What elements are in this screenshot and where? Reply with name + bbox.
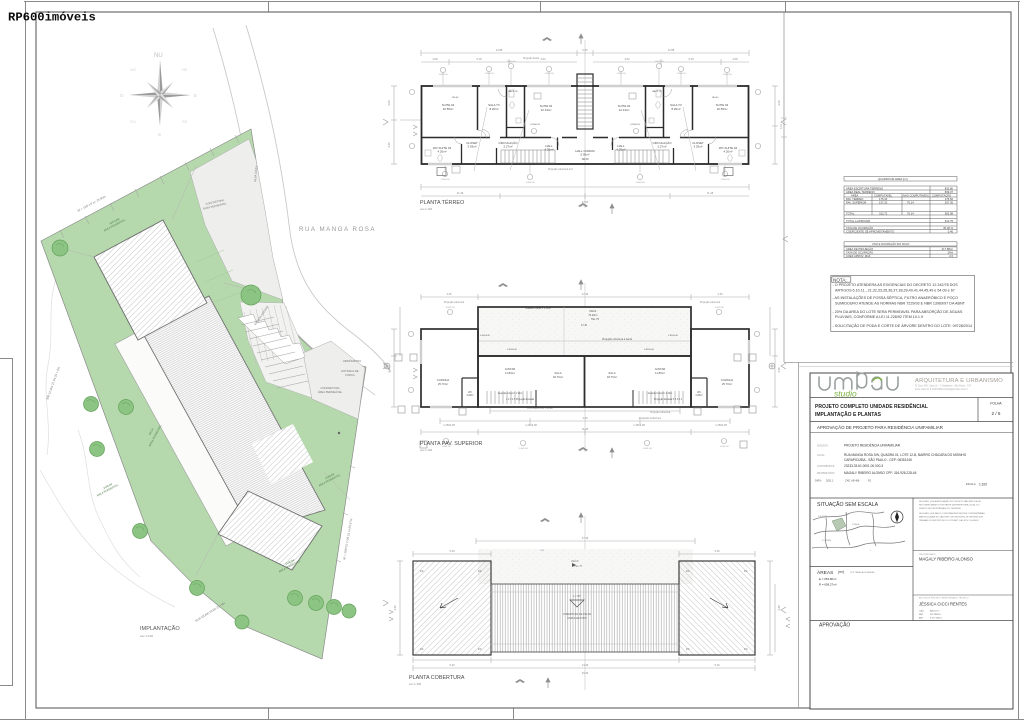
svg-text:QUADRO DE AREA (m²): QUADRO DE AREA (m²)	[878, 177, 908, 181]
svg-text:PROJETO COMPLETO UNIDADE RESID: PROJETO COMPLETO UNIDADE RESIDÊNCIAL	[815, 402, 928, 410]
svg-text:TOTAL: TOTAL	[846, 211, 855, 215]
svg-text:CONCRETONA: CONCRETONA	[320, 386, 339, 390]
svg-text:AUTOR DE PROJETO RESPONSÁVEL T: AUTOR DE PROJETO RESPONSÁVEL TÉCNICO	[919, 597, 969, 600]
svg-text:1.650/.05: 1.650/.05	[616, 73, 626, 75]
svg-text:Projeção cobertura: Projeção cobertura	[639, 416, 661, 420]
svg-text:5.49: 5.49	[714, 549, 720, 553]
svg-text:R. Tons, 460, Casa 31 - V. Mad: R. Tons, 460, Casa 31 - V. Madalena - Sã…	[915, 385, 971, 388]
svg-text:8.20m²: 8.20m²	[490, 107, 499, 111]
svg-text:35.06 %: 35.06 %	[943, 226, 953, 230]
svg-text:DIREITO DE PROPRIEDADE DO: DIREITO DE PROPRIEDADE DO TERRENO.	[919, 507, 962, 510]
svg-text:TEL.75: TEL.75	[591, 318, 600, 321]
svg-text:137.20: 137.20	[879, 200, 888, 204]
svg-text:190.00: 190.00	[581, 159, 589, 161]
svg-text:0.7500.10: 0.7500.10	[530, 124, 541, 126]
svg-text:4.46: 4.46	[387, 142, 391, 148]
svg-text:esc 1:100: esc 1:100	[409, 682, 422, 686]
svg-text:Fone: Dani 11 9 2345-6692 pris: Fone: Dani 11 9 2345-6692 priscila@umbau…	[915, 388, 968, 391]
svg-text:1 x 45°: 1 x 45°	[573, 595, 581, 598]
svg-text:1.650/.05: 1.650/.05	[654, 61, 664, 63]
svg-text:1.4503.08: 1.4503.08	[715, 423, 727, 427]
svg-text:NU: NU	[154, 53, 163, 59]
svg-text:11.86m²: 11.86m²	[505, 371, 515, 375]
svg-text:4.35m²: 4.35m²	[545, 148, 554, 152]
svg-text:1.45/1.08: 1.45/1.08	[518, 448, 528, 450]
svg-text:(m²): (m²)	[838, 570, 844, 574]
svg-text:ENTRADA DE: ENTRADA DE	[341, 369, 358, 373]
svg-text:839.07: 839.07	[945, 190, 954, 194]
svg-text:309.12 des 21.04.24 + 9m: 309.12 des 21.04.24 + 9m	[45, 366, 61, 401]
svg-text:studio: studio	[834, 389, 857, 399]
svg-text:Projeção Escada 5 4 3 2 1: Projeção Escada 5 4 3 2 1	[654, 398, 683, 401]
svg-text:TENHAM OS DEPÓSITOS DO LOTE A: TENHAM OS DEPÓSITOS DO LOTE ART. DA LEI …	[919, 519, 979, 522]
svg-text:3.62: 3.62	[624, 57, 630, 61]
svg-text:E = 653.80m²: E = 653.80m²	[819, 577, 836, 581]
svg-text:3.62: 3.62	[540, 57, 546, 61]
svg-text:PLANTA PAV. SUPERIOR: PLANTA PAV. SUPERIOR	[420, 441, 483, 447]
svg-text:NOTA:: NOTA:	[833, 277, 847, 282]
svg-text:IMPLANTAÇÃO: IMPLANTAÇÃO	[140, 625, 180, 632]
svg-text:R = 658.27m²: R = 658.27m²	[819, 583, 837, 587]
svg-text:1.450/.05: 1.450/.05	[440, 179, 450, 181]
svg-text:AREA: AREA	[851, 193, 859, 197]
svg-text:RRT: RRT	[919, 614, 924, 616]
svg-text:ASSUNTO:: ASSUNTO:	[817, 445, 829, 448]
svg-text:ÁREA PERMEÁVEL: ÁREA PERMEÁVEL	[318, 390, 343, 394]
svg-text:COBERTURA DE TELHA: COBERTURA DE TELHA	[563, 613, 592, 616]
svg-text:FORÇA: FORÇA	[345, 373, 355, 377]
svg-text:76.14: 76.14	[907, 211, 914, 215]
svg-text:4.8503.40: 4.8503.40	[507, 349, 518, 351]
svg-text:SITUAÇÃO SEM ESCALA: SITUAÇÃO SEM ESCALA	[817, 501, 879, 508]
svg-text:Guarda Corpo h 1.10m: Guarda Corpo h 1.10m	[648, 392, 672, 395]
svg-text:CFF TABELA DE ÁREAS: CFF TABELA DE ÁREAS	[850, 571, 875, 574]
svg-text:11.48: 11.48	[457, 191, 464, 195]
svg-text:COEF APROV. MAX: COEF APROV. MAX	[846, 254, 871, 258]
svg-text:MATRÍCULADAS NO CARTÓRIO DE RE: MATRÍCULADAS NO CARTÓRIO DE REGISTRO DE …	[919, 516, 984, 519]
svg-text:76.20m²: 76.20m²	[588, 314, 597, 317]
svg-text:25.70m²: 25.70m²	[438, 382, 448, 386]
svg-text:4.46: 4.46	[387, 367, 391, 373]
svg-text:CAD. AE-486:: CAD. AE-486:	[845, 480, 860, 483]
svg-text:18.76m²: 18.76m²	[553, 375, 563, 379]
svg-text:11.46: 11.46	[582, 427, 589, 431]
svg-text:4.46: 4.46	[446, 292, 452, 296]
svg-text:IMPLANTAÇÃO E PLANTAS: IMPLANTAÇÃO E PLANTAS	[815, 411, 882, 418]
svg-text:4.46: 4.46	[582, 416, 588, 420]
svg-text:1.65/2.30: 1.65/2.30	[714, 307, 724, 309]
svg-text:- 20% DA AREA DO LOTE SERA PE: - 20% DA AREA DO LOTE SERA PERMEAVEL PAR…	[833, 309, 963, 314]
svg-text:175.30: 175.30	[879, 197, 888, 201]
svg-text:APROVAÇÃO DE PROJETO PARA RESI: APROVAÇÃO DE PROJETO PARA RESIDÊNCIA UNI…	[817, 425, 943, 430]
svg-text:4.20m²: 4.20m²	[438, 150, 447, 154]
svg-text:COMPUTAVEL: COMPUTAVEL	[874, 193, 893, 197]
svg-text:DECK: DECK	[571, 559, 578, 563]
svg-text:APROVAÇÃO: APROVAÇÃO	[819, 622, 850, 629]
svg-text:SUMIDOURO ATENDE AS NORMAS NBR: SUMIDOURO ATENDE AS NORMAS NBR 7229/93 E…	[835, 302, 966, 306]
svg-text:- SOLICITAÇÃO DE PODA E CORTE: - SOLICITAÇÃO DE PODA E CORTE DE ÁRVORE …	[833, 323, 973, 328]
svg-text:- O PROJETO ATENDERA AS EXIGEN: - O PROJETO ATENDERA AS EXIGENCIAS DO DE…	[833, 283, 959, 287]
svg-text:SO: SO	[130, 119, 136, 124]
svg-text:Guarda Corpo h 1.10m: Guarda Corpo h 1.10m	[525, 307, 551, 310]
svg-text:4.46: 4.46	[717, 292, 723, 296]
svg-text:AREA REAL TERRENO: AREA REAL TERRENO	[846, 190, 875, 194]
svg-text:4.35m²: 4.35m²	[617, 148, 626, 152]
svg-text:190.00: 190.00	[452, 97, 459, 99]
svg-text:1.450/.05: 1.450/.05	[720, 179, 730, 181]
svg-text:2.27m²: 2.27m²	[658, 145, 667, 149]
svg-text:3.48: 3.48	[777, 605, 781, 611]
svg-text:PLUVIAIS, CONFORME A LEI 11.22: PLUVIAIS, CONFORME A LEI 11.228/92 ITEM …	[835, 315, 923, 319]
svg-text:25.46: 25.46	[582, 671, 589, 675]
svg-text:Projeção cobertura a beiral: Projeção cobertura a beiral	[602, 338, 632, 341]
svg-text:WC: WC	[468, 392, 472, 394]
svg-text:DECK: DECK	[590, 310, 597, 313]
svg-text:1.650/.05: 1.650/.05	[438, 74, 448, 76]
svg-text:RUA MANGA ROSA S/N, QUADRA 01,: RUA MANGA ROSA S/N, QUADRA 01, LOTE 12-B…	[844, 453, 967, 457]
svg-text:esc 1:100: esc 1:100	[420, 448, 433, 452]
svg-text:1 2 3 4 5 Projeção Escada: 1 2 3 4 5 Projeção Escada	[506, 398, 535, 401]
svg-text:312.72: 312.72	[879, 211, 888, 215]
svg-text:1.450/.05: 1.450/.05	[525, 182, 535, 184]
svg-text:1.650/.05: 1.650/.05	[484, 73, 494, 75]
svg-text:Projeção cobertura incl.: Projeção cobertura incl.	[548, 168, 573, 171]
svg-text:5.18: 5.18	[688, 57, 694, 61]
svg-text:MAGALY RIBEIRO ALONSO CPF: 31: MAGALY RIBEIRO ALONSO CPF: 316.926.228-4…	[844, 471, 917, 475]
svg-text:0.46: 0.46	[948, 230, 954, 234]
svg-text:0.7500.10: 0.7500.10	[630, 124, 641, 126]
svg-text:25.70m²: 25.70m²	[722, 382, 732, 386]
svg-text:Projeção cobertura: Projeção cobertura	[700, 301, 721, 304]
svg-text:Projeção beiral: Projeção beiral	[523, 57, 539, 60]
svg-text:ARQUITETURA E URBANISMO: ARQUITETURA E URBANISMO	[915, 378, 1003, 384]
svg-text:1.4503.08: 1.4503.08	[443, 423, 455, 427]
svg-text:4.46: 4.46	[777, 367, 781, 373]
svg-text:O: O	[120, 93, 124, 98]
svg-text:3.08: 3.08	[387, 100, 391, 106]
svg-text:FOLHA: FOLHA	[990, 402, 1002, 406]
svg-text:3.03m²: 3.03m²	[694, 145, 703, 149]
svg-text:12.13m²: 12.13m²	[619, 108, 630, 112]
svg-text:18.76m²: 18.76m²	[607, 375, 617, 379]
svg-text:RUA MANGA ROSA: RUA MANGA ROSA	[299, 226, 376, 233]
svg-text:Projeção cobertura: Projeção cobertura	[650, 411, 671, 414]
svg-text:1.650/.05: 1.650/.05	[722, 74, 732, 76]
svg-text:RP600imóveis: RP600imóveis	[8, 11, 96, 25]
svg-text:14.46: 14.46	[582, 663, 589, 667]
svg-text:17.46: 17.46	[582, 536, 589, 540]
svg-text:Projeção cobertura: Projeção cobertura	[444, 301, 465, 304]
svg-text:11.48: 11.48	[707, 191, 714, 195]
svg-text:NAO COMPUTAVEIS: NAO COMPUTAVEIS	[903, 193, 929, 197]
svg-text:MAGALY RIBEIRO ALONSO: MAGALY RIBEIRO ALONSO	[919, 557, 974, 562]
svg-text:PROPRIETÁRIO:: PROPRIETÁRIO:	[817, 472, 835, 475]
svg-text:RUA EZAW 23.04.23 +9N: RUA EZAW 23.04.23 +9N	[194, 601, 225, 623]
svg-text:382.98: 382.98	[945, 211, 954, 215]
svg-text:5.05m²: 5.05m²	[581, 153, 590, 157]
svg-text:PLANTA COBERTURA: PLANTA COBERTURA	[409, 675, 465, 681]
svg-text:ONDULADA/TPO: ONDULADA/TPO	[567, 617, 587, 620]
svg-text:4.20m²: 4.20m²	[724, 150, 733, 154]
svg-text:PROJETO RESIDÊNCIA UNIFAMILIAR: PROJETO RESIDÊNCIA UNIFAMILIAR	[844, 443, 901, 448]
svg-text:ESCALA:: ESCALA:	[966, 483, 976, 486]
svg-text:- AS INSTALAÇÕES DE FOSSA SÉPT: - AS INSTALAÇÕES DE FOSSA SÉPTICA, FILTR…	[833, 295, 959, 300]
svg-text:1.45/1.08: 1.45/1.08	[719, 446, 729, 448]
svg-text:2 / 5: 2 / 5	[992, 411, 1001, 416]
svg-text:R.DALIA: R.DALIA	[852, 523, 860, 526]
svg-text:3.28m²: 3.28m²	[466, 394, 473, 397]
svg-text:3.03m²: 3.03m²	[468, 145, 477, 149]
svg-text:190.00: 190.00	[712, 97, 719, 99]
svg-text:RECONHECIMENTO POR PARTE DA: RECONHECIMENTO POR PARTE DA PREFEITURA L…	[919, 504, 980, 507]
svg-text:DECLARO QUE SÃO E CONSTRAM INS: DECLARO QUE SÃO E CONSTRAM INSCRIÇÕES CO…	[919, 512, 985, 515]
svg-text:217.88m²: 217.88m²	[942, 247, 953, 251]
svg-text:9.177.486-0: 9.177.486-0	[930, 618, 942, 620]
svg-text:SE: SE	[182, 119, 188, 124]
svg-text:4.08: 4.08	[432, 57, 438, 61]
svg-text:A60137-7: A60137-7	[930, 610, 940, 613]
svg-text:175.66: 175.66	[945, 197, 954, 201]
svg-text:DECLARO QUE A APROVAÇÃO DO: DECLARO QUE A APROVAÇÃO DO PROJETO NÃO I…	[919, 500, 981, 503]
svg-text:26%: 26%	[948, 251, 954, 255]
svg-text:2031.1: 2031.1	[826, 480, 834, 483]
svg-text:3.10: 3.10	[780, 124, 783, 129]
svg-text:PAV. TERREO: PAV. TERREO	[846, 197, 863, 201]
svg-text:E: E	[194, 93, 197, 98]
svg-text:BACK TE: BACK TE	[508, 90, 518, 93]
svg-text:1.650/.05: 1.650/.05	[676, 73, 686, 75]
svg-text:4.08: 4.08	[732, 57, 738, 61]
svg-text:23233.33.61.0001.00.000-3: 23233.33.61.0001.00.000-3	[844, 464, 883, 468]
svg-text:R.M.ROSA: R.M.ROSA	[818, 515, 828, 518]
svg-text:1.650/.05: 1.650/.05	[506, 61, 516, 63]
svg-text:16.55m²: 16.55m²	[443, 107, 454, 111]
svg-text:5.49: 5.49	[714, 663, 720, 667]
svg-text:1.4503.08: 1.4503.08	[525, 423, 537, 427]
svg-text:4.8503.40: 4.8503.40	[644, 349, 655, 351]
svg-text:ARTIGOS 6.10.11., 21,32,33,35,: ARTIGOS 6.10.11., 21,32,33,35,36,37,38,3…	[835, 289, 955, 293]
svg-text:COEFICIENTE DE APROVEITAMENTO: COEFICIENTE DE APROVEITAMENTO	[846, 230, 894, 234]
svg-text:NO: NO	[130, 67, 136, 72]
svg-text:2.27m²: 2.27m²	[504, 145, 513, 149]
svg-text:207.36: 207.36	[945, 200, 954, 204]
svg-text:12.88: 12.88	[668, 48, 675, 52]
svg-text:832.80: 832.80	[945, 186, 954, 190]
svg-text:1:100: 1:100	[979, 483, 987, 487]
svg-text:1.45/1.08: 1.45/1.08	[642, 448, 652, 450]
svg-text:0.25: 0.25	[582, 48, 588, 52]
svg-text:ÁREAS: ÁREAS	[817, 569, 833, 576]
svg-text:5.49: 5.49	[449, 549, 455, 553]
svg-text:ART: ART	[919, 617, 924, 620]
svg-text:WC: WC	[697, 392, 701, 394]
svg-text:AREA ESCRITURA TERRENO: AREA ESCRITURA TERRENO	[846, 186, 883, 190]
svg-text:9517968-8: 9517968-8	[930, 614, 941, 616]
svg-text:4.46: 4.46	[393, 605, 397, 611]
svg-text:esc 1:100: esc 1:100	[420, 207, 433, 211]
svg-text:3.28m²: 3.28m²	[695, 394, 702, 397]
svg-text:NE: NE	[182, 67, 188, 72]
svg-text:312.75: 312.75	[945, 219, 954, 223]
svg-text:16.55m²: 16.55m²	[717, 107, 728, 111]
svg-text:11.86m²: 11.86m²	[655, 371, 665, 375]
svg-text:S: S	[158, 132, 161, 137]
svg-text:CAU: CAU	[919, 610, 924, 613]
svg-text:TOTAL A APROVAR: TOTAL A APROVAR	[846, 219, 870, 223]
svg-text:DATA:: DATA:	[815, 480, 822, 483]
svg-text:TEL.75: TEL.75	[574, 565, 582, 568]
svg-text:1.4503.08: 1.4503.08	[633, 423, 645, 427]
svg-text:PAV. SUPERIOR: PAV. SUPERIOR	[846, 200, 866, 204]
svg-text:Guarda Corpo h 1.10m: Guarda Corpo h 1.10m	[498, 392, 522, 395]
svg-text:PLANTA TÉRREO: PLANTA TÉRREO	[420, 199, 464, 206]
svg-text:CONTRIBUINTE:: CONTRIBUINTE:	[817, 466, 835, 468]
svg-text:17.46: 17.46	[582, 292, 589, 296]
svg-text:4.8503.40: 4.8503.40	[668, 335, 679, 337]
svg-text:1.65/2.30: 1.65/2.30	[445, 307, 455, 309]
svg-text:12.13m²: 12.13m²	[541, 108, 552, 112]
svg-text:8.20m²: 8.20m²	[672, 107, 681, 111]
svg-text:R.JASMIM: R.JASMIM	[822, 539, 831, 542]
svg-text:esc 1:100: esc 1:100	[140, 634, 153, 638]
svg-text:LOCAL:: LOCAL:	[817, 454, 826, 457]
svg-text:4.8503.40: 4.8503.40	[480, 335, 491, 337]
svg-text:2.6: 2.6	[949, 254, 953, 258]
svg-text:17.46: 17.46	[581, 324, 588, 327]
svg-text:1.450/.05: 1.450/.05	[635, 182, 645, 184]
svg-text:3.08: 3.08	[777, 100, 781, 106]
svg-text:Aℓ = 189°03' r=26.51 e=25.67m: Aℓ = 189°03' r=26.51 e=25.67m	[342, 518, 353, 560]
svg-text:5.18: 5.18	[476, 57, 482, 61]
svg-text:JÉSSICA CICCI RENTES: JÉSSICA CICCI RENTES	[919, 602, 967, 607]
svg-text:1.650/.05: 1.650/.05	[544, 73, 554, 75]
svg-text:BACK TE: BACK TE	[652, 90, 662, 93]
svg-text:CARAPICUÍBA - SÃO PAULO - CEP:: CARAPICUÍBA - SÃO PAULO - CEP: 06351245	[844, 457, 912, 462]
svg-text:76.14: 76.14	[907, 200, 914, 204]
svg-text:5.49: 5.49	[449, 663, 455, 667]
svg-text:12.88: 12.88	[496, 48, 503, 52]
